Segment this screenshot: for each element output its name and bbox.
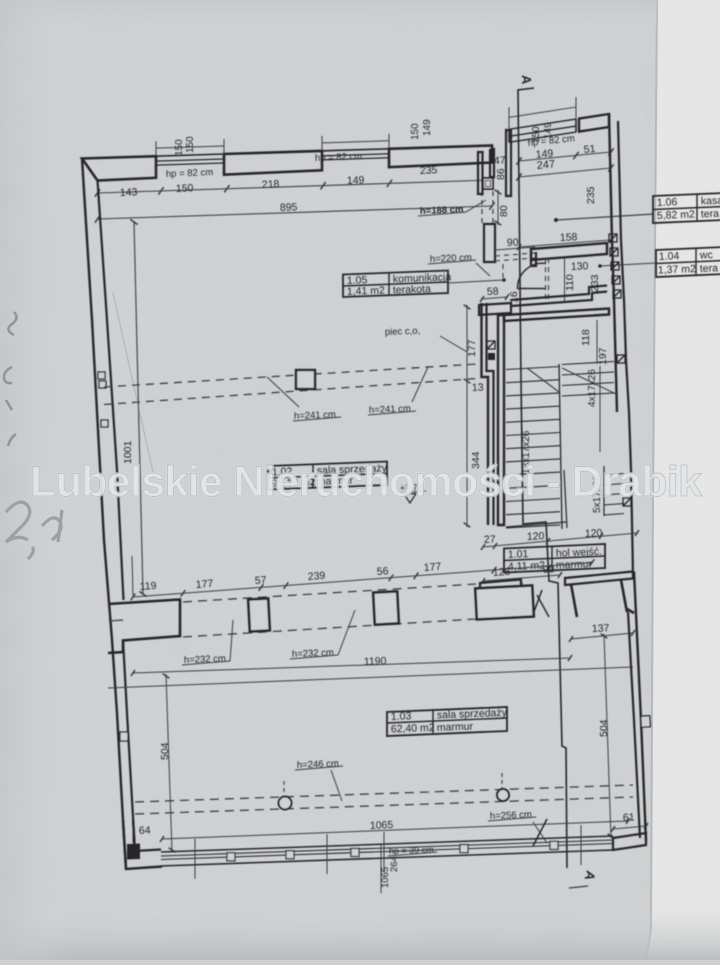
svg-text:149: 149 <box>422 119 433 136</box>
svg-text:terakota: terakota <box>393 283 432 297</box>
svg-text:58: 58 <box>487 286 499 298</box>
svg-text:wc: wc <box>699 249 713 262</box>
svg-text:90: 90 <box>507 237 519 249</box>
svg-text:150: 150 <box>174 139 185 156</box>
svg-text:hp = 82 cm: hp = 82 cm <box>166 167 214 180</box>
svg-text:235: 235 <box>585 186 597 204</box>
svg-text:56: 56 <box>376 565 389 578</box>
svg-text:1,37 m2: 1,37 m2 <box>658 263 697 277</box>
svg-text:13: 13 <box>472 382 484 394</box>
svg-text:1.06: 1.06 <box>657 196 678 209</box>
svg-text:504: 504 <box>598 719 610 737</box>
svg-text:62,40 m2: 62,40 m2 <box>391 722 435 736</box>
svg-text:1065: 1065 <box>380 867 391 888</box>
svg-text:130: 130 <box>571 260 589 273</box>
svg-text:tera: tera <box>700 262 719 275</box>
svg-text:51: 51 <box>583 143 596 156</box>
svg-text:Lubelskie Nieruchomości - Drab: Lubelskie Nieruchomości - Drabik <box>30 458 702 506</box>
svg-text:hp = 82 cm: hp = 82 cm <box>315 151 363 164</box>
svg-text:marmur: marmur <box>437 721 474 734</box>
svg-text:119: 119 <box>139 580 157 593</box>
svg-text:143: 143 <box>120 186 138 199</box>
svg-text:120: 120 <box>585 527 603 540</box>
svg-text:233: 233 <box>589 274 601 292</box>
svg-text:504: 504 <box>159 742 171 760</box>
svg-text:150: 150 <box>176 182 194 195</box>
svg-text:118: 118 <box>580 329 592 346</box>
svg-text:149: 149 <box>347 174 365 187</box>
svg-text:1.03: 1.03 <box>391 710 412 723</box>
svg-text:1.04: 1.04 <box>659 250 680 263</box>
svg-text:1.01: 1.01 <box>508 548 529 561</box>
svg-text:137: 137 <box>592 622 610 635</box>
svg-text:150: 150 <box>185 136 196 153</box>
svg-text:47: 47 <box>494 155 506 167</box>
svg-text:27: 27 <box>484 534 496 546</box>
svg-text:110: 110 <box>564 274 576 291</box>
svg-text:235: 235 <box>420 164 438 177</box>
svg-text:tera: tera <box>701 208 720 221</box>
svg-text:kasa: kasa <box>701 195 720 208</box>
svg-text:61: 61 <box>623 812 635 824</box>
svg-text:150: 150 <box>410 123 421 140</box>
svg-text:128: 128 <box>492 566 510 579</box>
svg-text:1,41 m2: 1,41 m2 <box>347 284 386 298</box>
svg-text:57: 57 <box>254 574 267 587</box>
svg-text:239: 239 <box>307 570 325 583</box>
svg-text:218: 218 <box>262 178 280 191</box>
svg-text:177: 177 <box>466 339 478 357</box>
svg-text:64: 64 <box>139 825 151 837</box>
svg-text:4x17x26: 4x17x26 <box>587 369 598 407</box>
svg-text:177: 177 <box>423 561 441 574</box>
svg-text:piec c,o,: piec c,o, <box>385 326 421 338</box>
svg-text:80: 80 <box>498 205 510 217</box>
svg-text:247: 247 <box>536 158 555 172</box>
svg-text:1190: 1190 <box>364 655 387 668</box>
svg-text:197: 197 <box>597 347 609 365</box>
svg-text:158: 158 <box>560 231 578 244</box>
svg-text:16: 16 <box>508 291 520 303</box>
svg-text:5,82 m2: 5,82 m2 <box>657 208 696 222</box>
svg-text:A: A <box>519 75 534 85</box>
svg-text:hol wejść.: hol wejść. <box>556 546 603 560</box>
svg-text:895: 895 <box>280 201 298 214</box>
svg-text:177: 177 <box>195 578 213 591</box>
svg-text:120: 120 <box>527 530 545 543</box>
svg-text:90: 90 <box>542 563 555 576</box>
